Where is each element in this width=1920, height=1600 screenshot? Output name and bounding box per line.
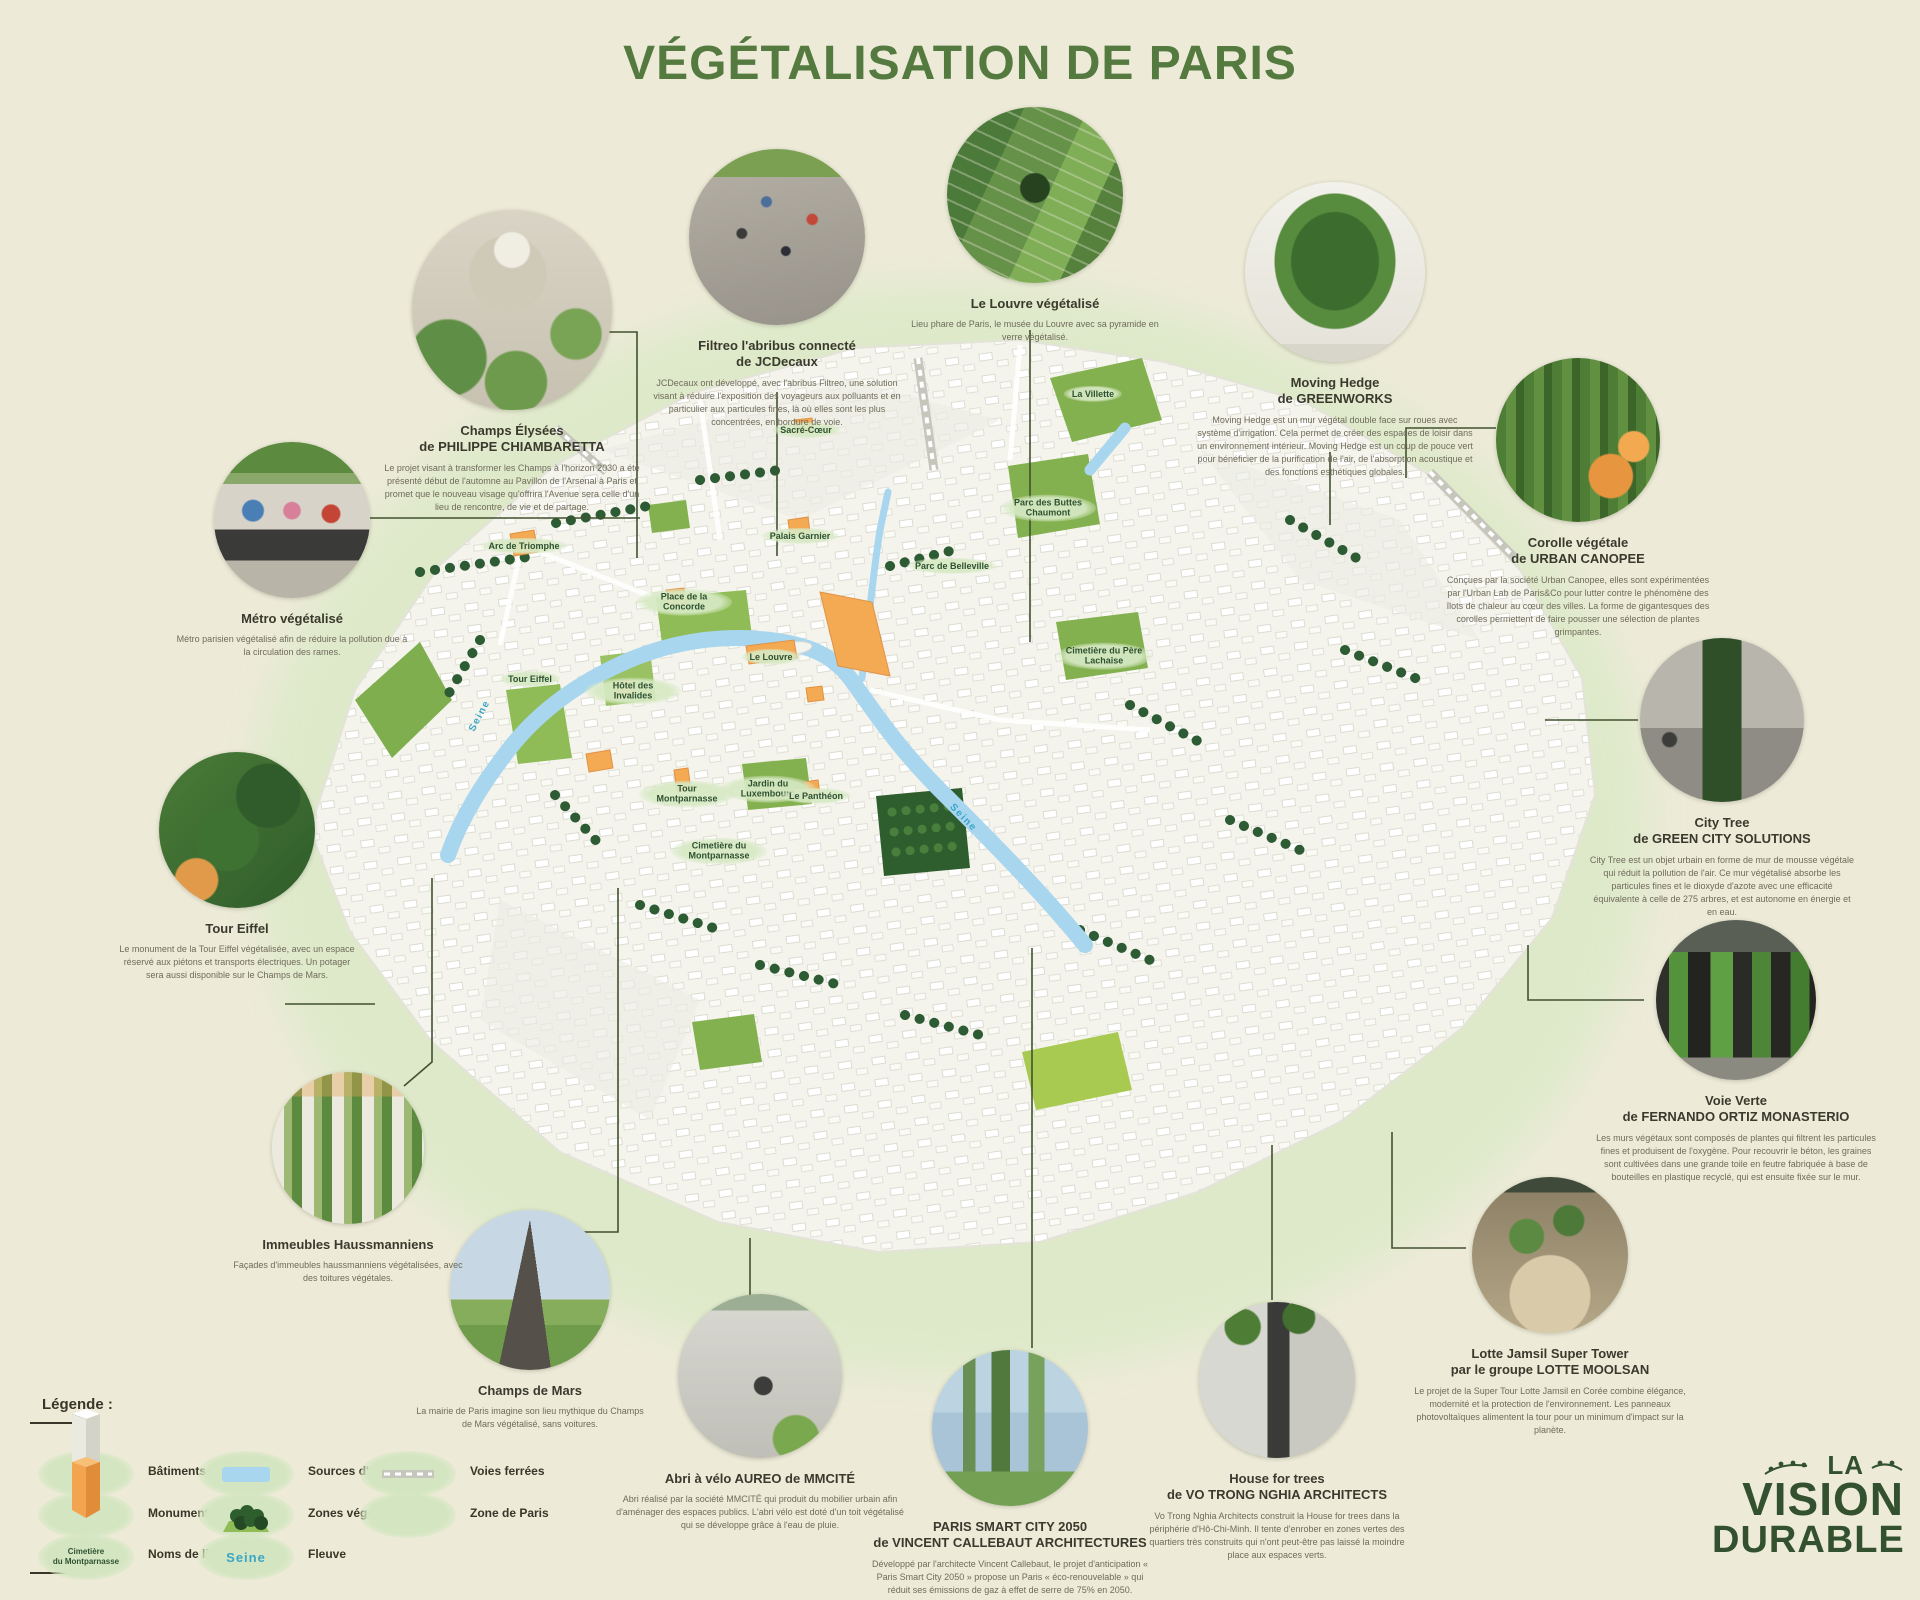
callout-title: Corolle végétalede URBAN CANOPEE [1511,535,1645,568]
photo-metro-vegetalise [214,442,370,598]
callout-title: Tour Eiffel [205,921,268,937]
callout-moving-hedge: Moving Hedgede GREENWORKS Moving Hedge e… [1190,182,1480,479]
callout-title: Immeubles Haussmanniens [262,1237,433,1253]
callout-title: Moving Hedgede GREENWORKS [1278,375,1393,408]
map-label-invalides: Hôtel des Invalides [585,678,681,705]
callout-title: Voie Vertede FERNANDO ORTIZ MONASTERIO [1623,1093,1850,1126]
callout-corolle: Corolle végétalede URBAN CANOPEE Conçues… [1438,358,1718,639]
callout-desc: Moving Hedge est un mur végétal double f… [1195,414,1475,479]
photo-tour-eiffel [159,752,315,908]
callout-desc: Métro parisien végétalisé afin de réduir… [172,633,412,659]
callout-title: Abri à vélo AUREO de MMCITÉ [665,1471,855,1487]
legend-zone-swatch [360,1492,456,1538]
brand-logo: LA VISION DURABLE [1712,1452,1904,1558]
photo-moving-hedge [1245,182,1425,362]
map-label-concorde: Place de la Concorde [636,589,732,616]
callout-voie-verte: Voie Vertede FERNANDO ORTIZ MONASTERIO L… [1586,920,1886,1184]
callout-desc: Le monument de la Tour Eiffel végétalisé… [117,943,357,982]
callout-title: PARIS SMART CITY 2050de VINCENT CALLEBAU… [873,1519,1146,1552]
legend-voies-label: Voies ferrées [470,1464,545,1478]
callout-desc: Lieu phare de Paris, le musée du Louvre … [907,318,1163,344]
callout-desc: City Tree est un objet urbain en forme d… [1589,854,1855,919]
callout-house-for-trees: House for treesde VO TRONG NGHIA ARCHITE… [1132,1302,1422,1562]
callout-title: City Treede GREEN CITY SOLUTIONS [1633,815,1810,848]
photo-abri-velo [678,1294,842,1458]
monument-3d-icon [60,1454,112,1532]
photo-lotte-tower [1472,1177,1628,1333]
callout-title: Filtreo l'abribus connectéde JCDecaux [698,338,856,371]
monument-ecole-militaire [586,750,613,772]
water-swatch-icon [222,1467,270,1482]
photo-paris-smart-city [932,1350,1088,1506]
callout-desc: Le projet de la Super Tour Lotte Jamsil … [1410,1385,1690,1437]
monument-hotel-de-ville [806,686,824,702]
legend-eau-swatch [198,1451,294,1497]
legend-voies-swatch [360,1451,456,1497]
place-name-sample: Cimetière du Montparnasse [53,1547,119,1566]
callout-title: Le Louvre végétalisé [971,296,1100,312]
photo-louvre-vegetalise [947,107,1123,283]
photo-voie-verte [1656,920,1816,1080]
callout-title: House for treesde VO TRONG NGHIA ARCHITE… [1167,1471,1387,1504]
callout-city-tree: City Treede GREEN CITY SOLUTIONS City Tr… [1582,638,1862,919]
callout-filtreo: Filtreo l'abribus connectéde JCDecaux JC… [637,149,917,429]
callout-title: Métro végétalisé [241,611,343,627]
photo-immeubles-haussmanniens [272,1072,424,1224]
photo-arc-de-triomphe [412,210,612,410]
callout-metro: Métro végétalisé Métro parisien végétali… [152,442,432,659]
photo-house-for-trees [1199,1302,1355,1458]
legend-vegetales-swatch [198,1492,294,1538]
callout-title: Lotte Jamsil Super Towerpar le groupe LO… [1451,1346,1650,1379]
callout-desc: Développé par l'architecte Vincent Calle… [870,1558,1150,1597]
callout-title: Champs Élyséesde PHILIPPE CHIAMBARETTA [419,423,604,456]
photo-corolle [1496,358,1660,522]
vegetation-icon [217,1494,275,1536]
callout-louvre: Le Louvre végétalisé Lieu phare de Paris… [895,107,1175,344]
callout-tour-eiffel: Tour Eiffel Le monument de la Tour Eiffe… [97,752,377,982]
map-label-cimetiere-montparnasse: Cimetière du Montparnasse [671,838,767,865]
callout-desc: Conçues par la société Urban Canopee, el… [1442,574,1714,639]
logo-durable: DURABLE [1712,1522,1904,1558]
callout-desc: Façades d'immeubles haussmanniens végéta… [228,1259,468,1285]
railway-icon [380,1467,436,1481]
callout-desc: Vo Trong Nghia Architects construit la H… [1141,1510,1413,1562]
legend-fleuve-swatch: Seine [198,1534,294,1580]
legend-noms-swatch: Cimetière du Montparnasse [38,1534,134,1580]
poster: VÉGÉTALISATION DE PARIS [0,0,1920,1600]
callout-desc: JCDecaux ont développé, avec l'abribus F… [646,377,908,429]
logo-vision: VISION [1712,1478,1904,1522]
map-label-pere-lachaise: Cimetière du Père Lachaise [1056,643,1152,670]
callout-lotte-tower: Lotte Jamsil Super Towerpar le groupe LO… [1405,1177,1695,1437]
river-name-sample: Seine [226,1550,266,1565]
legend-zone-label: Zone de Paris [470,1506,549,1520]
legend: Légende : Bâtiments Monuments Cimetière … [30,1396,570,1596]
callout-desc: Abri réalisé par la société MMCITÉ qui p… [615,1493,905,1532]
callout-desc: Les murs végétaux sont composés de plant… [1591,1132,1881,1184]
map-label-buttes-chaumont: Parc des Buttes Chaumont [1000,495,1096,522]
legend-fleuve-label: Fleuve [308,1547,346,1561]
photo-abribus [689,149,865,325]
callout-haussmann: Immeubles Haussmanniens Façades d'immeub… [208,1072,488,1285]
photo-city-tree [1640,638,1804,802]
